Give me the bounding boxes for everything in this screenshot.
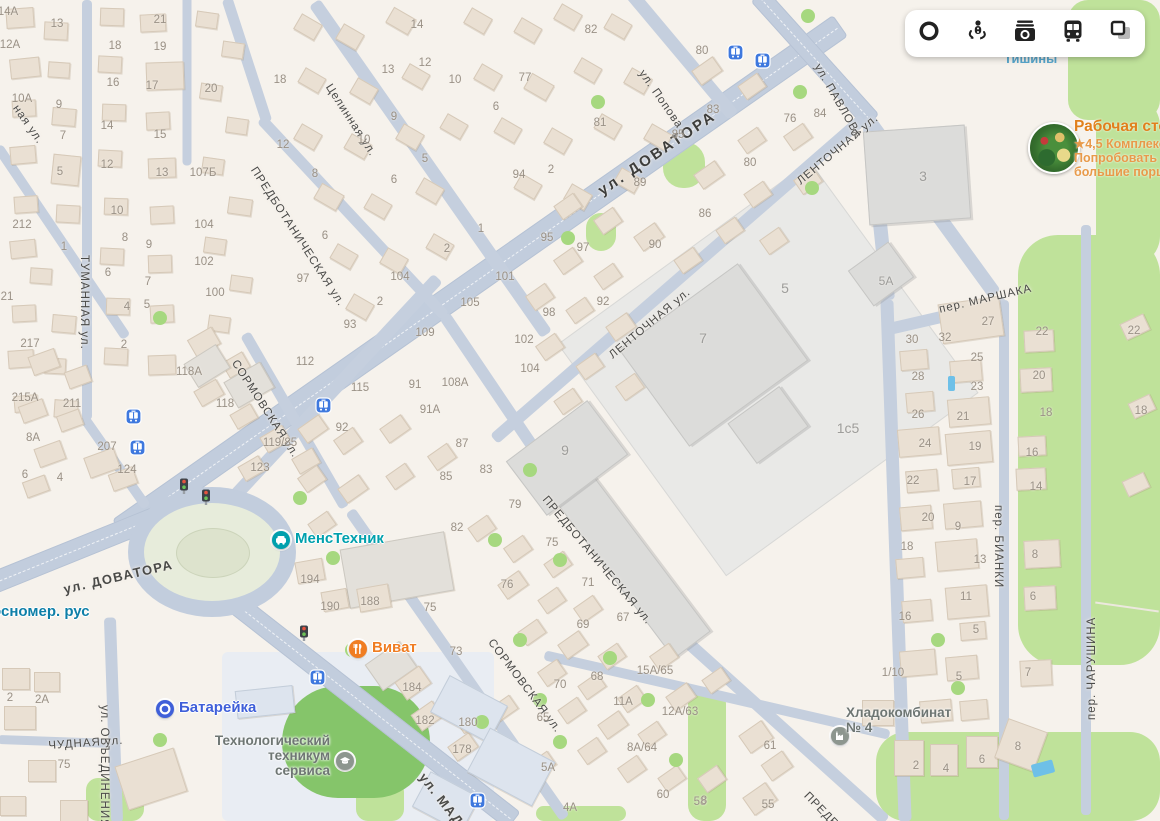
house-number: 2 [121, 339, 127, 351]
house-number: 32 [939, 332, 952, 344]
house-number: 92 [336, 422, 349, 434]
house-number: 12 [277, 139, 290, 151]
building [98, 55, 123, 73]
poi-label-education[interactable]: техникум [268, 748, 330, 763]
building [148, 355, 177, 376]
house-number: 98 [543, 307, 556, 319]
tree [293, 491, 307, 505]
house-number: 60 [657, 789, 670, 801]
building [33, 440, 66, 468]
poi-label-plate[interactable]: госномер. рус [0, 603, 90, 620]
house-number: 18 [901, 541, 914, 553]
street-view-icon-button[interactable] [955, 12, 999, 56]
house-number: 82 [585, 24, 598, 36]
house-number: 7 [60, 130, 66, 142]
house-number: 5 [781, 280, 789, 296]
poi-label-education[interactable]: сервиса [275, 763, 330, 778]
house-number: 12А/63 [662, 706, 698, 718]
house-number: 119/85 [263, 437, 297, 449]
house-number: 12 [419, 57, 432, 69]
house-number: 61 [764, 740, 777, 752]
building [51, 154, 82, 187]
house-number: 2А [35, 694, 49, 706]
house-number: 2 [913, 760, 919, 772]
traffic-light-icon [179, 478, 189, 500]
house-number: 13 [51, 18, 64, 30]
house-number: 7 [699, 330, 707, 346]
building [47, 61, 70, 78]
building [148, 255, 173, 274]
house-number: 71 [582, 577, 595, 589]
building [100, 8, 125, 27]
house-number: 2 [444, 243, 450, 255]
house-number: 18 [274, 74, 287, 86]
tram-stop-icon[interactable] [309, 669, 326, 691]
building [0, 796, 26, 816]
building [513, 17, 542, 44]
house-number: 5 [57, 166, 63, 178]
building [4, 706, 36, 730]
house-number: 9 [955, 521, 961, 533]
tree [553, 553, 567, 567]
building [493, 117, 522, 144]
house-number: 23 [971, 381, 984, 393]
house-number: 73 [450, 646, 463, 658]
poi-label-shop[interactable]: Батарейка [179, 699, 256, 716]
house-number: 83 [480, 464, 493, 476]
photos-icon-button[interactable] [1003, 12, 1047, 56]
house-number: 21 [957, 411, 970, 423]
house-number: 14 [101, 120, 114, 132]
building [12, 304, 37, 322]
building [29, 267, 52, 284]
house-number: 212 [12, 219, 31, 231]
house-number: 5 [956, 671, 962, 683]
house-number: 9 [561, 442, 569, 458]
tree [669, 753, 683, 767]
house-number: 84 [814, 108, 827, 120]
house-number: 91 [409, 379, 422, 391]
house-number: 13 [974, 554, 987, 566]
house-number: 6 [493, 101, 499, 113]
house-number: 6 [105, 267, 111, 279]
house-number: 6 [322, 230, 328, 242]
house-number: 104 [194, 219, 213, 231]
house-number: 6 [979, 754, 985, 766]
house-number: 1с5 [837, 420, 860, 436]
transport-icon-button[interactable] [1051, 12, 1095, 56]
house-number: 76 [501, 579, 514, 591]
house-number: 17 [146, 80, 159, 92]
poi-label-education[interactable]: Технологический [215, 733, 330, 748]
house-number: 25 [971, 352, 984, 364]
house-number: 101 [495, 271, 514, 283]
house-number: 180 [458, 717, 477, 729]
house-number: 21 [154, 14, 167, 26]
house-number: 80 [744, 157, 757, 169]
house-number: 109 [415, 327, 434, 339]
map-toolbar [905, 10, 1145, 57]
building [56, 204, 81, 223]
building [593, 263, 622, 291]
house-number: 2 [548, 164, 554, 176]
house-number: 8А [26, 432, 40, 444]
house-number: 18 [109, 40, 122, 52]
building [425, 233, 454, 260]
house-number: 18 [1135, 405, 1148, 417]
house-number: 22 [1128, 325, 1141, 337]
house-number: 1/10 [882, 667, 904, 679]
house-number: 6 [22, 469, 28, 481]
building [895, 557, 925, 579]
building [9, 145, 36, 165]
green-area [536, 806, 626, 821]
tram-stop-icon[interactable] [129, 439, 146, 461]
house-number: 16 [899, 611, 912, 623]
house-number: 24 [919, 438, 932, 450]
building [783, 123, 813, 152]
building [617, 755, 647, 784]
house-number: 188 [360, 596, 379, 608]
building [100, 247, 125, 265]
house-number: 11А [613, 696, 633, 708]
building [899, 349, 929, 371]
house-number: 8А/64 [627, 742, 657, 754]
house-number: 15 [154, 129, 167, 141]
building [363, 193, 392, 220]
building [329, 243, 358, 270]
map-canvas[interactable]: Целинная ул.ул. Поповаул. ПАВЛОВАул. ДОВ… [0, 0, 1160, 821]
layers-icon [1108, 18, 1134, 49]
house-number: 22 [907, 475, 920, 487]
building [9, 56, 41, 79]
house-number: 79 [509, 499, 522, 511]
house-number: 30 [906, 334, 919, 346]
house-number: 5А [879, 274, 894, 288]
ad-avatar-photo[interactable] [1028, 122, 1080, 174]
house-number: 14 [411, 19, 424, 31]
tree [793, 85, 807, 99]
house-number: 207 [97, 441, 116, 453]
house-number: 20 [922, 512, 935, 524]
building [51, 314, 76, 334]
building [1023, 585, 1056, 611]
house-number: 15А/65 [637, 665, 673, 677]
building [379, 414, 411, 444]
house-number: 86 [699, 208, 712, 220]
house-number: 4 [124, 301, 130, 313]
house-number: 75 [546, 537, 559, 549]
house-number: 19 [154, 41, 167, 53]
house-number: 4 [57, 472, 63, 484]
house-number: 2 [377, 296, 383, 308]
house-number: 5 [973, 624, 979, 636]
house-number: 14 [1030, 481, 1043, 493]
house-number: 19 [969, 441, 982, 453]
building [427, 443, 457, 472]
house-number: 28 [912, 371, 925, 383]
house-number: 16 [107, 77, 120, 89]
building [9, 239, 37, 260]
building [225, 117, 249, 136]
traffic-light-icon [299, 625, 309, 647]
house-number: 104 [390, 271, 409, 283]
house-number: 20 [1033, 370, 1046, 382]
house-number: 6 [391, 174, 397, 186]
house-number: 21 [1, 291, 14, 303]
building [102, 104, 127, 122]
road [222, 0, 273, 124]
house-number: 90 [649, 239, 662, 251]
ad-text-line: Попробовать [1074, 151, 1157, 165]
roundabout-inner-oval [176, 528, 250, 578]
house-number: 97 [577, 242, 590, 254]
building [959, 699, 989, 721]
building [761, 750, 794, 781]
house-number: 10 [358, 134, 371, 146]
building [221, 41, 245, 60]
layers-icon-button[interactable] [1099, 12, 1143, 56]
house-number: 18 [1040, 407, 1053, 419]
building [899, 648, 937, 677]
house-number: 102 [514, 334, 533, 346]
building [503, 535, 533, 564]
building [577, 737, 607, 766]
tree [153, 733, 167, 747]
house-number: 85 [440, 471, 453, 483]
house-number: 194 [300, 574, 319, 586]
house-number: 7 [145, 276, 151, 288]
house-number: 182 [415, 715, 434, 727]
house-number: 26 [912, 409, 925, 421]
house-number: 112 [296, 356, 314, 368]
house-number: 12А [0, 39, 20, 51]
house-number: 100 [205, 287, 224, 299]
building [146, 111, 171, 130]
house-number: 4 [943, 763, 949, 775]
house-number: 108А [442, 377, 469, 389]
poi-label-factory[interactable]: № 4 [846, 720, 872, 735]
building [737, 127, 766, 155]
house-number: 184 [402, 682, 421, 694]
street-view-icon [964, 18, 990, 49]
house-number: 102 [194, 256, 213, 268]
tree [591, 95, 605, 109]
house-number: 76 [784, 113, 797, 125]
house-number: 85 [672, 129, 685, 141]
house-number: 20 [205, 83, 218, 95]
tree [153, 311, 167, 325]
road [82, 0, 92, 420]
house-number: 9 [391, 111, 397, 123]
house-number: 178 [452, 744, 471, 756]
building [2, 668, 30, 690]
house-number: 11 [960, 591, 972, 603]
house-number: 118А [176, 366, 202, 378]
building [439, 113, 468, 140]
house-number: 69 [577, 619, 590, 631]
house-number: 10 [111, 205, 124, 217]
building [863, 125, 971, 226]
house-number: 83 [707, 104, 720, 116]
building [60, 800, 88, 821]
tree [553, 735, 567, 749]
building [114, 748, 187, 811]
house-number: 6 [1030, 591, 1036, 603]
house-number: 9 [56, 99, 62, 111]
building [537, 587, 566, 615]
poi-icon-shop[interactable] [156, 700, 174, 718]
house-number: 12 [101, 159, 114, 171]
ad-rating: ★4,5 Комплекс [1074, 136, 1160, 151]
tram-stop-icon[interactable] [315, 397, 332, 419]
house-number: 105 [460, 297, 479, 309]
tram-stop-icon[interactable] [754, 52, 771, 74]
house-number: 1 [478, 223, 484, 235]
house-number: 8 [312, 168, 318, 180]
building [203, 237, 227, 256]
house-number: 65 [537, 712, 550, 724]
ad-text-line: большие порци [1074, 165, 1160, 179]
house-number: 190 [320, 601, 339, 613]
house-number: 94 [513, 169, 526, 181]
poi-label-auto-service[interactable]: МенсТехник [295, 530, 384, 547]
house-number: 55 [762, 799, 775, 811]
tree [561, 231, 575, 245]
tram-stop-icon[interactable] [727, 44, 744, 66]
road [1081, 225, 1091, 815]
house-number: 7 [1025, 667, 1031, 679]
house-number: 10 [449, 74, 462, 86]
house-number: 118 [216, 398, 234, 410]
house-number: 5 [144, 299, 150, 311]
building [943, 500, 983, 529]
house-number: 16 [1026, 447, 1039, 459]
panoramas-ring-icon [916, 18, 942, 49]
house-number: 4А [563, 802, 577, 814]
house-number: 17 [964, 476, 977, 488]
building [229, 275, 253, 294]
house-number: 215А [12, 392, 39, 404]
house-number: 211 [63, 398, 81, 410]
house-number: 22 [1036, 326, 1049, 338]
house-number: 107Б [190, 167, 217, 179]
building [34, 672, 60, 692]
house-number: 8 [701, 795, 707, 807]
tree [513, 633, 527, 647]
house-number: 8 [122, 232, 128, 244]
tree [603, 651, 617, 665]
building [603, 13, 632, 40]
house-number: 27 [982, 316, 995, 328]
road [622, 0, 738, 119]
house-number: 75 [424, 602, 437, 614]
tree [931, 633, 945, 647]
house-number: 97 [297, 273, 310, 285]
house-number: 80 [696, 45, 709, 57]
building [557, 697, 586, 725]
tree [951, 681, 965, 695]
house-number: 123 [250, 462, 269, 474]
building [597, 710, 629, 740]
tree [641, 693, 655, 707]
water-feature [948, 376, 955, 391]
house-number: 3 [919, 168, 927, 184]
house-number: 82 [451, 522, 464, 534]
building [543, 127, 573, 155]
poi-icon-education[interactable] [336, 752, 354, 770]
house-number: 2 [7, 692, 13, 704]
building [535, 333, 565, 362]
tree [488, 533, 502, 547]
house-number: 13 [382, 64, 395, 76]
house-number: 5 [422, 153, 428, 165]
ad-title[interactable]: Рабочая сто [1074, 118, 1160, 136]
building [573, 57, 602, 84]
tree [326, 551, 340, 565]
house-number: 1 [61, 241, 67, 253]
house-number: 89 [634, 177, 647, 189]
house-number: 93 [344, 319, 357, 331]
building [553, 3, 583, 31]
poi-label-factory[interactable]: Хладокомбинат [846, 705, 951, 720]
traffic-light-icon [201, 489, 211, 511]
house-number: 8 [1032, 549, 1038, 561]
house-number: 104 [520, 363, 539, 375]
tree [801, 9, 815, 23]
house-number: 115 [351, 382, 369, 394]
building [195, 11, 219, 30]
building [463, 7, 493, 35]
poi-label-restaurant[interactable]: Виват [372, 639, 417, 656]
building [297, 67, 326, 94]
photos-icon [1012, 18, 1038, 49]
house-number: 217 [20, 338, 39, 350]
house-number: 67 [617, 612, 630, 624]
house-number: 8 [1015, 741, 1021, 753]
house-number: 95 [541, 232, 554, 244]
building [385, 463, 414, 491]
house-number: 70 [554, 679, 567, 691]
house-number: 77 [519, 72, 532, 84]
building [227, 196, 253, 216]
house-number: 14А [0, 6, 18, 18]
house-number: 92 [597, 296, 610, 308]
house-number: 5А [541, 762, 555, 774]
panoramas-ring-icon-button[interactable] [907, 12, 951, 56]
poi-icon-restaurant[interactable] [349, 640, 367, 658]
building [345, 293, 375, 321]
tram-stop-icon[interactable] [125, 408, 142, 430]
house-number: 91А [420, 404, 440, 416]
building [13, 195, 38, 214]
house-number: 75 [58, 759, 71, 771]
house-number: 81 [594, 117, 607, 129]
building [473, 63, 503, 91]
transport-icon [1060, 18, 1086, 49]
building [293, 123, 323, 151]
house-number: 124 [117, 464, 136, 476]
house-number: 68 [591, 671, 604, 683]
house-number: 13 [156, 167, 169, 179]
poi-icon-auto-service[interactable] [272, 531, 290, 549]
building [28, 760, 56, 782]
building [150, 205, 175, 224]
building [1023, 539, 1060, 569]
building [894, 740, 924, 776]
tram-stop-icon[interactable] [469, 792, 486, 814]
house-number: 9 [146, 239, 152, 251]
